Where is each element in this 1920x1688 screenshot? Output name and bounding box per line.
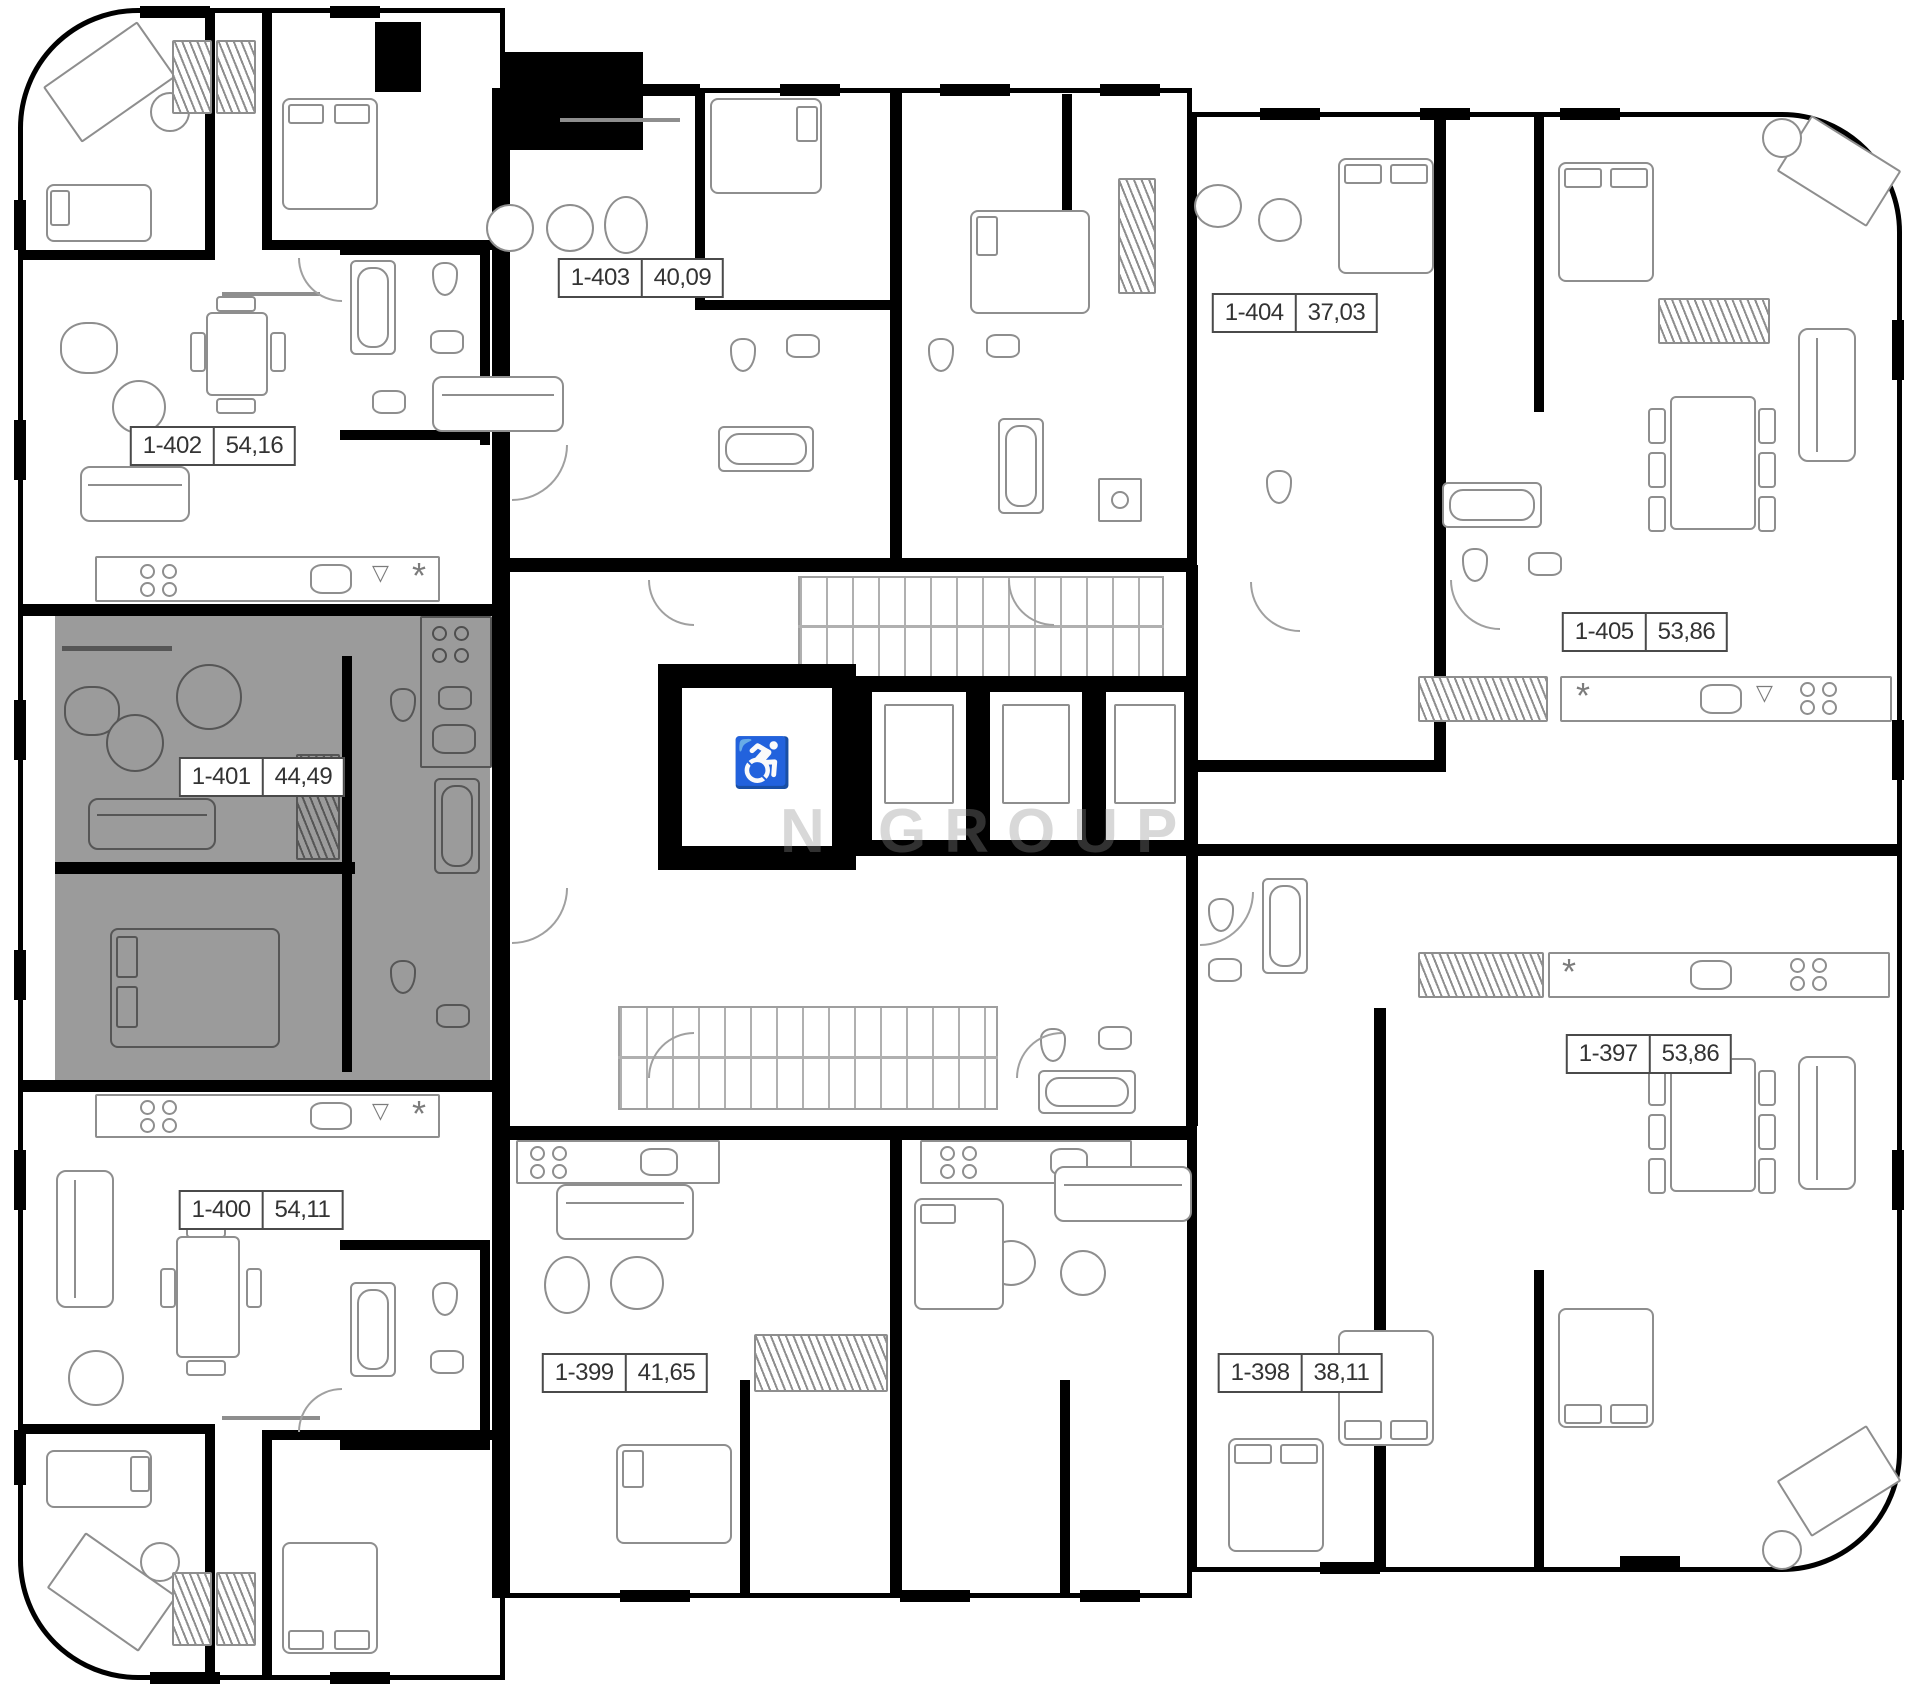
furniture-icon — [1798, 1056, 1856, 1190]
burner-icon — [140, 1118, 155, 1133]
chair-icon — [160, 1268, 176, 1308]
furniture-icon — [486, 204, 534, 252]
furniture-icon — [604, 196, 648, 254]
burner-icon — [140, 564, 155, 579]
furniture-icon — [610, 1256, 664, 1310]
chair-icon — [216, 398, 256, 414]
unit-area: 41,65 — [625, 1355, 707, 1391]
furniture-icon — [1442, 482, 1542, 528]
wall — [740, 1380, 750, 1598]
wall — [18, 1424, 214, 1434]
wheelchair-icon: ♿ — [732, 740, 792, 788]
burner-icon — [1812, 958, 1827, 973]
pillow-icon — [622, 1450, 644, 1488]
wall — [140, 6, 210, 18]
unit-label-1-399[interactable]: 1-399 41,65 — [542, 1353, 708, 1393]
wall — [480, 1248, 490, 1440]
wall — [505, 52, 643, 150]
burner-icon — [1111, 491, 1129, 509]
furniture-icon — [1762, 1530, 1802, 1570]
pillow-icon — [288, 1630, 324, 1650]
furniture-icon — [1700, 684, 1742, 714]
unit-label-1-405[interactable]: 1-405 53,86 — [1562, 612, 1728, 652]
burner-icon — [140, 582, 155, 597]
pillow-icon — [976, 216, 998, 256]
furniture-icon — [1054, 1166, 1192, 1222]
wall — [1620, 1556, 1680, 1568]
unit-id: 1-405 — [1564, 614, 1645, 650]
unit-label-1-403[interactable]: 1-403 40,09 — [558, 258, 724, 298]
furniture-icon — [206, 312, 268, 396]
burner-icon — [162, 1100, 177, 1115]
wall — [1534, 1270, 1544, 1572]
wall — [1260, 108, 1320, 120]
furniture-icon — [1418, 952, 1544, 998]
chair-icon — [1648, 1114, 1666, 1150]
unit-area: 54,16 — [213, 428, 295, 464]
wall — [1434, 112, 1446, 772]
wall — [640, 84, 700, 96]
wall — [14, 200, 26, 250]
kitchen-symbol: ▽ — [1756, 682, 1773, 704]
chair-icon — [1758, 408, 1776, 444]
pillow-icon — [116, 986, 138, 1028]
unit-label-1-402[interactable]: 1-402 54,16 — [130, 426, 296, 466]
furniture-icon — [986, 334, 1020, 358]
kitchen-symbol: * — [412, 1096, 426, 1132]
furniture-icon — [432, 376, 564, 432]
unit-id: 1-398 — [1220, 1355, 1301, 1391]
furniture-icon — [436, 1004, 470, 1028]
watermark: N GROUP — [780, 796, 1195, 867]
furniture-icon — [432, 724, 476, 754]
furniture-icon — [310, 564, 352, 594]
furniture-icon — [172, 1572, 212, 1646]
unit-area: 54,11 — [262, 1192, 342, 1228]
furniture-icon — [1528, 552, 1562, 576]
wall — [890, 88, 902, 570]
burner-icon — [454, 648, 469, 663]
kitchen-symbol: * — [1562, 954, 1576, 990]
wall — [330, 6, 380, 18]
furniture-icon — [176, 664, 242, 730]
pillow-icon — [50, 190, 70, 226]
chair-icon — [1758, 496, 1776, 532]
wall — [262, 8, 272, 248]
furniture-icon — [56, 1170, 114, 1308]
furniture-icon — [430, 1350, 464, 1374]
furniture-icon — [786, 334, 820, 358]
furniture-icon — [310, 1102, 352, 1130]
furniture-icon — [430, 330, 464, 354]
burner-icon — [162, 1118, 177, 1133]
wall — [1060, 1380, 1070, 1598]
chair-icon — [186, 1360, 226, 1376]
chair-icon — [1648, 496, 1666, 532]
unit-area: 53,86 — [1645, 614, 1727, 650]
wall — [340, 1240, 490, 1250]
chair-icon — [1758, 1070, 1776, 1106]
pillow-icon — [1610, 1404, 1648, 1424]
burner-icon — [1822, 700, 1837, 715]
wall — [262, 1430, 492, 1440]
furniture-icon — [1670, 396, 1756, 530]
pillow-icon — [1564, 1404, 1602, 1424]
chair-icon — [1648, 1158, 1666, 1194]
furniture-icon — [1670, 1058, 1756, 1192]
furniture-icon — [68, 1350, 124, 1406]
pillow-icon — [796, 106, 818, 142]
furniture-icon — [88, 798, 216, 850]
furniture-icon — [546, 204, 594, 252]
wall — [1320, 1562, 1380, 1574]
wall — [900, 1590, 970, 1602]
wall — [1560, 108, 1620, 120]
pillow-icon — [1280, 1444, 1318, 1464]
furniture-icon — [1208, 958, 1242, 982]
wall — [620, 1590, 690, 1602]
unit-area: 38,11 — [1301, 1355, 1381, 1391]
wall — [55, 862, 355, 874]
furniture-icon — [176, 1236, 240, 1358]
pillow-icon — [1390, 164, 1428, 184]
wall — [14, 420, 26, 480]
tv-stand-icon — [62, 646, 172, 651]
burner-icon — [140, 1100, 155, 1115]
furniture-icon — [216, 40, 256, 114]
chair-icon — [1758, 452, 1776, 488]
wall — [940, 84, 1010, 96]
wall — [1374, 1008, 1386, 1572]
wall — [1892, 320, 1904, 380]
burner-icon — [1800, 682, 1815, 697]
furniture-icon — [544, 1256, 590, 1314]
furniture-icon — [556, 1184, 694, 1240]
chair-icon — [246, 1268, 262, 1308]
furniture-icon — [754, 1334, 888, 1392]
unit-label-1-397[interactable]: 1-397 53,86 — [1566, 1034, 1732, 1074]
wall — [262, 1440, 272, 1680]
furniture-icon — [718, 426, 814, 472]
furniture-icon — [438, 686, 472, 710]
chair-icon — [1758, 1114, 1776, 1150]
unit-area: 37,03 — [1295, 295, 1377, 331]
chair-icon — [1648, 452, 1666, 488]
wall — [14, 1430, 26, 1485]
burner-icon — [940, 1164, 955, 1179]
wall — [505, 1126, 1192, 1140]
wall — [340, 1440, 490, 1450]
burner-icon — [162, 564, 177, 579]
furniture-icon — [1690, 960, 1732, 990]
stair-divider — [798, 625, 1164, 628]
burner-icon — [940, 1146, 955, 1161]
chair-icon — [190, 332, 206, 372]
tv-stand-icon — [560, 118, 680, 122]
pillow-icon — [1564, 168, 1602, 188]
furniture-icon — [516, 1140, 720, 1184]
unit-id: 1-403 — [560, 260, 641, 296]
unit-id: 1-399 — [544, 1355, 625, 1391]
chair-icon — [270, 332, 286, 372]
pillow-icon — [1344, 164, 1382, 184]
wall — [1420, 108, 1470, 120]
furniture-icon — [1798, 328, 1856, 462]
chair-icon — [1758, 1158, 1776, 1194]
furniture-icon — [640, 1148, 678, 1176]
wall — [330, 1672, 390, 1684]
chair-icon — [216, 296, 256, 312]
burner-icon — [432, 648, 447, 663]
wall — [1892, 720, 1904, 780]
wall — [1192, 844, 1902, 856]
burner-icon — [1790, 958, 1805, 973]
wall — [780, 84, 840, 96]
furniture-icon — [350, 1282, 396, 1377]
chair-icon — [1648, 1070, 1666, 1106]
furniture-icon — [60, 322, 118, 374]
pillow-icon — [920, 1204, 956, 1224]
wall — [505, 558, 1192, 572]
furniture-icon — [1418, 676, 1548, 722]
furniture-icon — [1258, 198, 1302, 242]
wall — [1080, 1590, 1140, 1602]
furniture-icon — [1060, 1250, 1106, 1296]
wall — [1186, 760, 1442, 772]
unit-label-1-400[interactable]: 1-400 54,11 — [179, 1190, 344, 1230]
burner-icon — [162, 582, 177, 597]
unit-label-1-398[interactable]: 1-398 38,11 — [1218, 1353, 1383, 1393]
chair-icon — [1648, 408, 1666, 444]
wall — [1100, 84, 1160, 96]
furniture-icon — [172, 40, 212, 114]
burner-icon — [962, 1164, 977, 1179]
burner-icon — [1812, 976, 1827, 991]
furniture-icon — [884, 704, 954, 804]
wall — [695, 300, 900, 310]
wall — [340, 245, 490, 255]
furniture-icon — [1762, 118, 1802, 158]
burner-icon — [1822, 682, 1837, 697]
pillow-icon — [116, 936, 138, 978]
unit-id: 1-404 — [1214, 295, 1295, 331]
wall — [18, 250, 214, 260]
wall — [342, 656, 352, 1072]
unit-area: 53,86 — [1649, 1036, 1731, 1072]
furniture-icon — [1118, 178, 1156, 294]
burner-icon — [1790, 976, 1805, 991]
furniture-icon — [1098, 1026, 1132, 1050]
unit-id: 1-400 — [181, 1192, 262, 1228]
pillow-icon — [1234, 1444, 1272, 1464]
burner-icon — [454, 626, 469, 641]
pillow-icon — [1390, 1420, 1428, 1440]
furniture-icon — [1114, 704, 1176, 804]
wall — [14, 1150, 26, 1210]
furniture-icon — [998, 418, 1044, 514]
wall — [890, 1126, 902, 1598]
unit-area: 44,49 — [262, 759, 344, 795]
wall — [14, 950, 26, 1000]
wall — [18, 1080, 505, 1092]
pillow-icon — [334, 104, 370, 124]
furniture-icon — [1002, 704, 1070, 804]
wall — [14, 700, 26, 760]
furniture-icon — [1658, 298, 1770, 344]
wall — [492, 88, 506, 1598]
wall — [150, 1672, 220, 1684]
furniture-icon — [434, 778, 480, 874]
burner-icon — [432, 626, 447, 641]
wall — [375, 22, 421, 92]
pillow-icon — [1344, 1420, 1382, 1440]
burner-icon — [552, 1146, 567, 1161]
unit-id: 1-401 — [181, 759, 262, 795]
pillow-icon — [288, 104, 324, 124]
burner-icon — [962, 1146, 977, 1161]
unit-area: 40,09 — [641, 260, 723, 296]
pillow-icon — [130, 1456, 150, 1492]
kitchen-symbol: ▽ — [372, 1100, 389, 1122]
furniture-icon — [350, 260, 396, 355]
burner-icon — [1800, 700, 1815, 715]
wall — [1892, 1150, 1904, 1210]
unit-id: 1-402 — [132, 428, 213, 464]
kitchen-symbol: * — [1576, 678, 1590, 714]
burner-icon — [552, 1164, 567, 1179]
furniture-icon — [216, 1572, 256, 1646]
floor-plan: ▽ * * ▽ * — [0, 0, 1920, 1688]
unit-label-1-404[interactable]: 1-404 37,03 — [1212, 293, 1378, 333]
burner-icon — [530, 1146, 545, 1161]
unit-id: 1-397 — [1568, 1036, 1649, 1072]
furniture-icon — [372, 390, 406, 414]
furniture-icon — [106, 714, 164, 772]
furniture-icon — [80, 466, 190, 522]
burner-icon — [530, 1164, 545, 1179]
pillow-icon — [334, 1630, 370, 1650]
pillow-icon — [1610, 168, 1648, 188]
furniture-icon — [1194, 184, 1242, 228]
furniture-icon — [1262, 878, 1308, 974]
unit-label-1-401[interactable]: 1-401 44,49 — [179, 757, 345, 797]
wall — [18, 604, 505, 616]
kitchen-symbol: ▽ — [372, 562, 389, 584]
kitchen-symbol: * — [412, 558, 426, 594]
wall — [1534, 112, 1544, 412]
